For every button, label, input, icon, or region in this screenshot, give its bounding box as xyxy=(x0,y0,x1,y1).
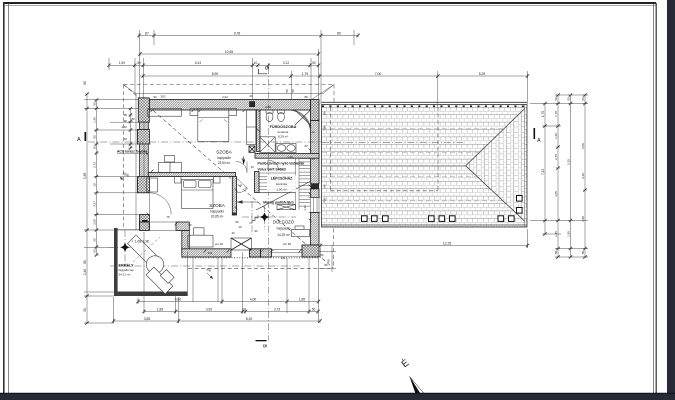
svg-text:80: 80 xyxy=(324,263,328,267)
svg-text:3,95: 3,95 xyxy=(206,307,212,311)
svg-text:pm 30: pm 30 xyxy=(215,242,223,246)
svg-text:3,12: 3,12 xyxy=(283,61,289,65)
svg-text:1,45: 1,45 xyxy=(92,117,96,123)
svg-text:1,85: 1,85 xyxy=(299,297,306,301)
svg-text:302: 302 xyxy=(208,251,213,255)
svg-text:50: 50 xyxy=(285,89,289,93)
svg-text:A: A xyxy=(77,137,81,143)
svg-text:80: 80 xyxy=(337,31,341,35)
svg-text:a=60: a=60 xyxy=(265,105,272,109)
svg-text:10: 10 xyxy=(92,146,96,150)
svg-text:50: 50 xyxy=(92,238,96,242)
svg-text:20,85 m²: 20,85 m² xyxy=(211,215,224,219)
svg-text:hajópadló: hajópadló xyxy=(217,156,231,160)
svg-text:161: 161 xyxy=(281,256,286,260)
svg-text:50: 50 xyxy=(83,308,87,312)
svg-text:2,10: 2,10 xyxy=(122,125,128,129)
svg-text:hajópadló: hajópadló xyxy=(210,210,224,214)
svg-text:40: 40 xyxy=(249,94,253,98)
svg-text:10: 10 xyxy=(238,225,242,229)
svg-text:80: 80 xyxy=(83,260,87,264)
svg-text:90: 90 xyxy=(254,229,258,233)
svg-text:86: 86 xyxy=(304,95,308,99)
svg-text:LÉPCSŐHÁZ: LÉPCSŐHÁZ xyxy=(271,176,293,181)
svg-text:fagyálló lap: fagyálló lap xyxy=(119,268,135,272)
svg-text:23,54 m²: 23,54 m² xyxy=(218,161,231,165)
svg-text:9,78: 9,78 xyxy=(234,31,241,35)
svg-text:50: 50 xyxy=(566,97,570,101)
svg-text:kerámia: kerámia xyxy=(276,182,287,186)
svg-text:2,02: 2,02 xyxy=(222,95,228,99)
svg-text:7,00: 7,00 xyxy=(375,72,382,76)
svg-text:2,40: 2,40 xyxy=(83,269,87,275)
svg-text:FÜRDŐSZOBA: FÜRDŐSZOBA xyxy=(270,124,297,129)
svg-text:9,38: 9,38 xyxy=(83,173,87,179)
svg-text:1,75: 1,75 xyxy=(302,72,309,76)
svg-text:80: 80 xyxy=(323,111,327,115)
svg-text:6,43: 6,43 xyxy=(195,61,201,65)
svg-text:90: 90 xyxy=(92,135,96,139)
svg-text:+ 1,08-1,38: + 1,08-1,38 xyxy=(132,240,149,244)
svg-text:19: 19 xyxy=(311,157,315,161)
svg-text:24,21 m²: 24,21 m² xyxy=(119,273,131,277)
svg-text:50: 50 xyxy=(137,61,141,65)
svg-text:SZOBA: SZOBA xyxy=(209,203,226,208)
svg-text:Velux GHT S46B3: Velux GHT S46B3 xyxy=(258,168,286,172)
svg-text:10: 10 xyxy=(92,183,96,187)
svg-text:Mászig padlófeljáró: Mászig padlófeljáró xyxy=(263,201,294,205)
svg-text:80: 80 xyxy=(131,117,135,121)
svg-text:4,65: 4,65 xyxy=(554,191,558,197)
svg-text:7,22: 7,22 xyxy=(541,169,545,175)
svg-text:10: 10 xyxy=(242,307,246,311)
svg-text:1,38: 1,38 xyxy=(287,155,293,159)
svg-text:1,70: 1,70 xyxy=(554,111,558,117)
svg-text:90: 90 xyxy=(235,220,239,224)
svg-text:9,30: 9,30 xyxy=(581,173,585,179)
svg-text:2,70: 2,70 xyxy=(554,154,558,160)
svg-text:1,70: 1,70 xyxy=(541,111,545,117)
svg-text:30: 30 xyxy=(231,231,235,235)
svg-text:5,00: 5,00 xyxy=(581,143,585,149)
svg-text:50: 50 xyxy=(581,97,585,101)
svg-text:7,90: 7,90 xyxy=(323,125,327,131)
svg-text:7,90: 7,90 xyxy=(323,197,327,203)
svg-text:3,85: 3,85 xyxy=(144,317,151,321)
svg-text:8,30: 8,30 xyxy=(246,317,253,321)
svg-text:1,90 m²: 1,90 m² xyxy=(276,188,286,192)
svg-text:ACO terasz folyóka: ACO terasz folyóka xyxy=(117,150,147,154)
svg-text:75: 75 xyxy=(166,215,170,219)
svg-text:90: 90 xyxy=(124,119,128,123)
svg-text:80: 80 xyxy=(323,184,327,188)
svg-text:hajópadló: hajópadló xyxy=(277,227,291,231)
svg-text:ERKÉLY: ERKÉLY xyxy=(119,263,135,268)
svg-text:1,38: 1,38 xyxy=(303,205,307,211)
svg-text:50: 50 xyxy=(92,249,96,253)
svg-text:50: 50 xyxy=(312,61,316,65)
svg-text:5,35: 5,35 xyxy=(566,159,570,165)
svg-text:1,95: 1,95 xyxy=(566,231,570,237)
svg-text:3,80: 3,80 xyxy=(581,216,585,222)
svg-text:90: 90 xyxy=(241,157,245,161)
svg-text:SZOBA: SZOBA xyxy=(216,150,233,155)
svg-text:10: 10 xyxy=(250,165,254,169)
svg-text:50: 50 xyxy=(312,186,316,190)
svg-text:50: 50 xyxy=(581,251,585,255)
svg-text:50: 50 xyxy=(554,97,558,101)
svg-text:3,75: 3,75 xyxy=(274,307,280,311)
svg-text:8,90: 8,90 xyxy=(212,72,219,76)
svg-text:80: 80 xyxy=(83,81,87,85)
svg-text:A: A xyxy=(537,138,541,144)
svg-text:60: 60 xyxy=(304,144,308,148)
svg-text:pm 90: pm 90 xyxy=(283,242,291,246)
svg-text:50: 50 xyxy=(92,102,96,106)
svg-text:90: 90 xyxy=(188,223,192,227)
svg-text:50: 50 xyxy=(554,251,558,255)
svg-text:Padlószintből nyíló tetőablak: Padlószintből nyíló tetőablak xyxy=(258,162,305,166)
svg-text:10: 10 xyxy=(254,61,258,65)
svg-text:1,50: 1,50 xyxy=(119,61,125,65)
svg-text:10,65: 10,65 xyxy=(225,50,234,54)
svg-text:1,25: 1,25 xyxy=(554,133,558,139)
svg-text:2,72: 2,72 xyxy=(92,162,96,168)
svg-text:50: 50 xyxy=(291,89,295,93)
svg-text:50: 50 xyxy=(312,307,316,311)
svg-text:DOLGOZÓ: DOLGOZÓ xyxy=(273,220,295,225)
svg-text:90: 90 xyxy=(153,95,157,99)
svg-text:302: 302 xyxy=(160,95,165,99)
svg-text:5,25: 5,25 xyxy=(479,72,486,76)
svg-text:60: 60 xyxy=(124,137,128,141)
svg-text:1,85: 1,85 xyxy=(157,307,163,311)
svg-text:8,29 m²: 8,29 m² xyxy=(278,134,288,138)
svg-text:14,25 m²: 14,25 m² xyxy=(277,233,290,237)
svg-text:12,25: 12,25 xyxy=(443,241,452,245)
svg-text:87: 87 xyxy=(145,31,149,35)
svg-text:4,37: 4,37 xyxy=(92,201,96,207)
svg-text:3,00: 3,00 xyxy=(92,219,96,225)
svg-text:14: 14 xyxy=(311,130,315,134)
svg-text:kerámia: kerámia xyxy=(278,130,289,134)
svg-text:4,00: 4,00 xyxy=(250,297,257,301)
svg-text:50: 50 xyxy=(320,253,324,257)
svg-text:80: 80 xyxy=(124,113,128,117)
